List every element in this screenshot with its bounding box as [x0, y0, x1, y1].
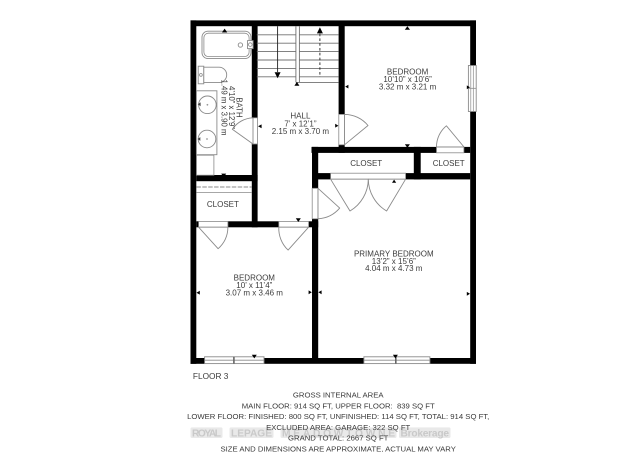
svg-text:FLOOR 3: FLOOR 3 [193, 371, 229, 381]
svg-text:MAIN FLOOR: 914 SQ FT, UPPER F: MAIN FLOOR: 914 SQ FT, UPPER FLOOR: 839 … [242, 401, 435, 410]
svg-text:3.32 m x 3.21 m: 3.32 m x 3.21 m [379, 83, 437, 92]
svg-text:GROSS INTERNAL AREA: GROSS INTERNAL AREA [293, 391, 384, 400]
svg-text:2.15 m x 3.70 m: 2.15 m x 3.70 m [272, 127, 330, 136]
svg-text:4.04 m x 4.73 m: 4.04 m x 4.73 m [365, 264, 423, 273]
svg-text:CLOSET: CLOSET [433, 159, 465, 168]
svg-text:CLOSET: CLOSET [207, 200, 239, 209]
svg-text:3.07 m x 3.46 m: 3.07 m x 3.46 m [226, 289, 284, 298]
svg-text:EXCLUDED AREA: GARAGE: 322 SQ: EXCLUDED AREA: GARAGE: 322 SQ FT [266, 423, 410, 432]
svg-text:LOWER FLOOR: FINISHED: 800 SQ: LOWER FLOOR: FINISHED: 800 SQ FT, UNFINI… [187, 412, 489, 421]
svg-text:1.49 m x 3.90 m: 1.49 m x 3.90 m [219, 80, 228, 136]
svg-text:GRAND TOTAL: 2667 SQ FT: GRAND TOTAL: 2667 SQ FT [288, 434, 389, 443]
svg-text:ROYAL: ROYAL [192, 429, 221, 440]
svg-text:SIZE AND DIMENSIONS ARE APPROX: SIZE AND DIMENSIONS ARE APPROXIMATE, ACT… [221, 444, 456, 452]
svg-text:CLOSET: CLOSET [350, 159, 382, 168]
